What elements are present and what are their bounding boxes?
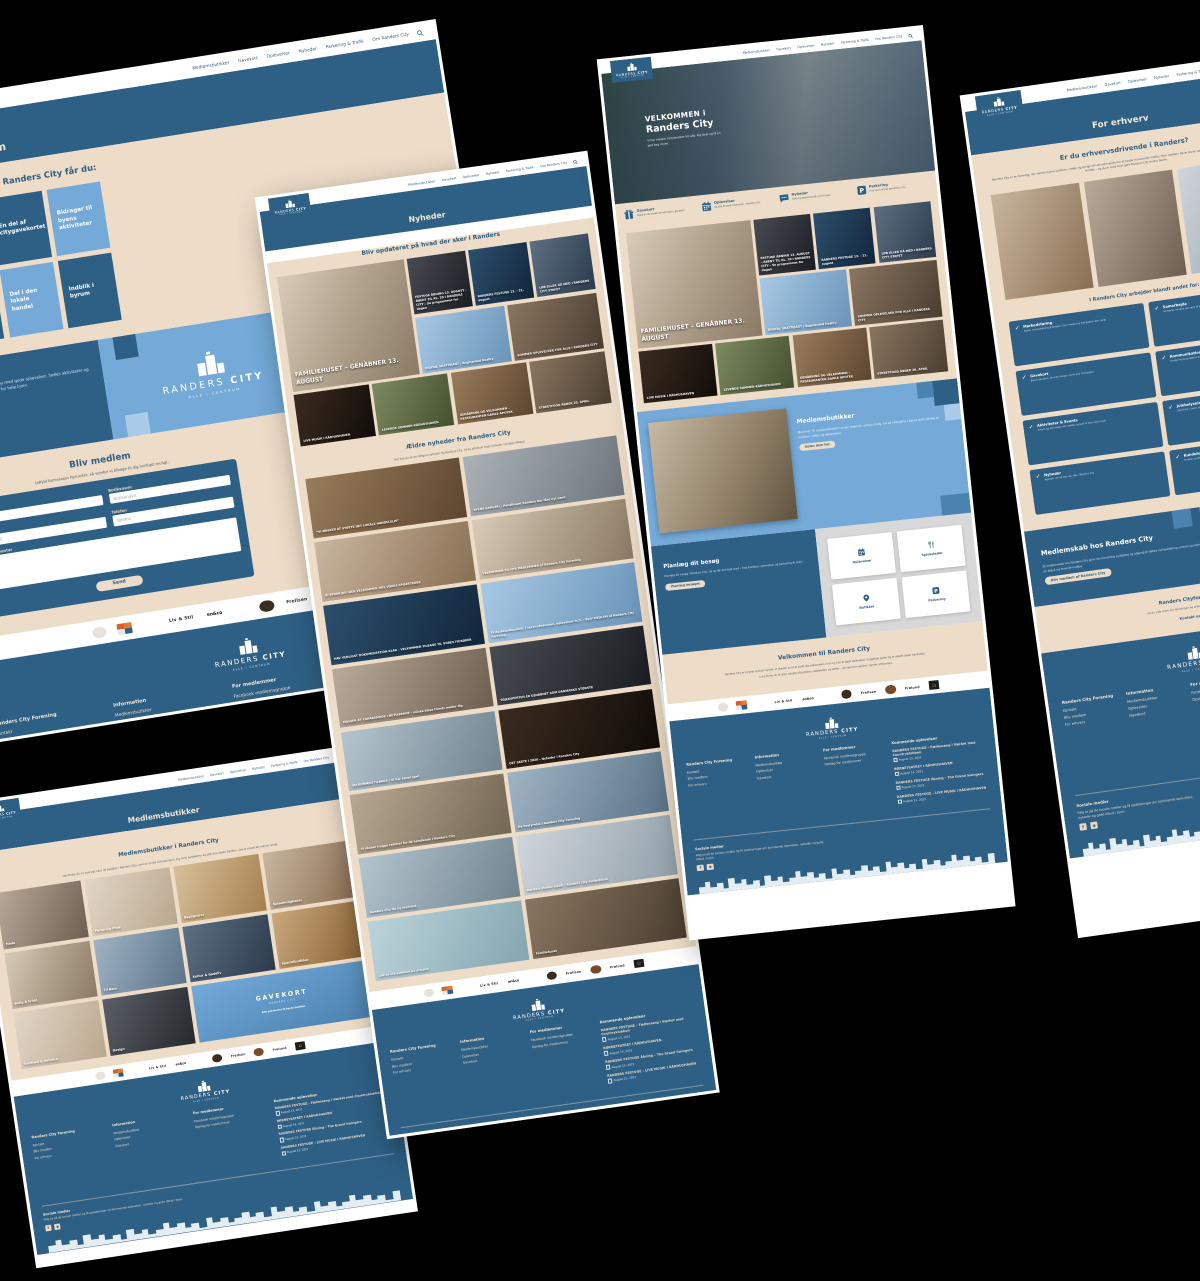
news-tile[interactable]: FESTUGE ÅBNING 13. AUGUST – ÅBENT TIL KL… xyxy=(753,213,816,275)
check-icon: ✓ xyxy=(1022,375,1032,410)
nav-item[interactable]: Nyheder xyxy=(252,765,265,771)
check-icon: ✓ xyxy=(1161,355,1171,390)
partner-logo: Liv & Stil xyxy=(167,612,196,628)
mosaic-square xyxy=(125,412,151,438)
news-grid: FAMILIEHUSET – GENÅBNER 13. AUGUST FESTU… xyxy=(618,200,956,404)
footer-column-medlemmer: For medlemmer Facebook medlemsgruppeOpsl… xyxy=(530,1022,593,1051)
category-tile[interactable]: Sundhed & Velvære xyxy=(13,1000,107,1069)
nav-item[interactable]: Nyheder xyxy=(486,170,500,176)
nav-item[interactable]: Om Randers City xyxy=(540,161,567,169)
partner-logo xyxy=(885,685,896,695)
nav-item[interactable]: Gavekort xyxy=(210,771,224,777)
pin-icon xyxy=(862,594,870,602)
news-tile[interactable]: LØB ELLER GÅ MED I RANDERS CITY STAFET xyxy=(873,201,936,263)
nav-item[interactable]: Oplevelser xyxy=(266,51,290,60)
front-news-section: FAMILIEHUSET – GENÅBNER 13. AUGUST FESTU… xyxy=(617,194,957,412)
buildings-logo-icon xyxy=(822,716,842,729)
footer-column-medlemmer: For medlemmer Facebook medlemsgruppeOpsl… xyxy=(1190,675,1200,705)
buildings-logo-icon xyxy=(991,96,1006,107)
nav-item[interactable]: Medlemsbutikker xyxy=(178,774,204,782)
category-tile[interactable]: Bolig & Fritid xyxy=(4,940,98,1009)
nav-item[interactable]: Nyheder xyxy=(1154,74,1170,80)
partner-logo xyxy=(528,973,540,983)
news-tile[interactable]: SOMMER OPLEVELSER FOR ALLE I RANDERS CIT… xyxy=(849,260,942,325)
calendar-icon xyxy=(279,1138,284,1143)
partner-logo: Frellsen xyxy=(564,967,583,978)
nav-item[interactable]: Gavekort xyxy=(776,46,791,51)
partner-logo xyxy=(234,603,250,617)
calendar-icon xyxy=(896,785,901,790)
category-tile[interactable]: Specialbutikker xyxy=(271,900,365,969)
nav-item[interactable]: Parkering & Trafik xyxy=(1176,69,1200,77)
nav-item[interactable]: Medlemsbutikker xyxy=(743,48,771,55)
plan-visit-button[interactable]: Planlæg besøget xyxy=(665,580,706,591)
nav-item[interactable]: Om Randers City xyxy=(303,755,329,763)
gift-icon xyxy=(624,209,635,220)
news-tile[interactable]: LEVENDE SOMMER-RÅDHUSHAVEN xyxy=(372,374,454,436)
category-tile[interactable]: Til Børn xyxy=(93,927,187,996)
footer-social: Sociale medier Følg os på de sociale med… xyxy=(402,1116,541,1136)
footer-column-medlemmer: For medlemmer Facebook medlemsgruppeOpsl… xyxy=(823,742,884,769)
footer-column-information: Information MedlemsbutikkerOplevelserGav… xyxy=(1126,684,1183,721)
partner-logo: Frølund xyxy=(903,682,921,692)
photo-cafe xyxy=(991,183,1094,300)
category-tile[interactable]: Spisemuligheder xyxy=(262,841,356,910)
see-shops-button[interactable]: Oplev dem her xyxy=(799,440,836,451)
mosaic-square xyxy=(113,334,139,360)
partner-logo xyxy=(546,971,558,981)
photo-clothing-store xyxy=(1084,169,1187,286)
check-icon: ✓ xyxy=(1175,455,1185,490)
category-tile[interactable]: Personlig Pleje xyxy=(84,867,178,936)
erhverv-section: Er du erhvervsdrivende i Randers? Rander… xyxy=(971,113,1200,532)
partner-logo xyxy=(254,1047,265,1056)
feature-gavekort[interactable]: Gavekort Glæd en du holder af med byens … xyxy=(624,203,697,220)
nav-item[interactable]: Medlemsbutikker xyxy=(1067,84,1098,92)
instagram-icon[interactable]: ◉ xyxy=(707,863,714,870)
partner-logo xyxy=(423,988,435,998)
calendar-icon xyxy=(602,1037,607,1042)
mosaic-square xyxy=(1172,508,1193,529)
buildings-logo-icon xyxy=(189,348,231,377)
banner-logo: RANDERS CITY ALLE I CENTRUM xyxy=(158,343,266,403)
search-icon[interactable] xyxy=(908,33,913,38)
nav-item[interactable]: Gavekort xyxy=(1104,81,1121,87)
footer-events: Kommende oplevelser RANDERS FESTUGE – Fæ… xyxy=(599,1008,701,1088)
nav-item[interactable]: Om Randers City xyxy=(875,34,902,41)
search-icon[interactable] xyxy=(416,29,424,37)
partner-logo xyxy=(442,986,454,996)
buildings-logo-icon xyxy=(283,199,296,209)
partner-logo: Frølund xyxy=(271,1044,288,1054)
nav-item[interactable]: Nyheder xyxy=(821,42,835,47)
news-tile[interactable]: RANDERS FESTUGE 13. - 21. august xyxy=(813,207,876,269)
nav-item[interactable]: Parkering & Trafik xyxy=(271,760,298,768)
calendar-icon xyxy=(608,1079,613,1084)
benefit-tile: Del i den lokale handel xyxy=(0,262,63,337)
check-icon: ✓ xyxy=(1154,306,1164,341)
news-tile[interactable]: LEVENDE SOMMER-RÅDHUSHAVEN xyxy=(715,336,794,395)
news-grid: FAMILIEHUSET – GENÅBNER 13. AUGUST FESTU… xyxy=(269,232,620,448)
calendar-icon xyxy=(604,1051,609,1056)
benefit-tile: Indblik i byrum xyxy=(58,253,122,328)
quick-links: Oplevelser Spisesteder Butikker Parkerin… xyxy=(815,513,982,637)
news-tile[interactable]: STREETFOOD ÅBNER 20. APRIL xyxy=(529,352,611,414)
facebook-icon[interactable]: f xyxy=(697,864,704,871)
nav-item[interactable]: Om Randers City xyxy=(372,32,409,43)
footer-column-forening: Randers City Forening KontaktBliv medlem… xyxy=(31,1125,107,1163)
nav-item[interactable]: Parkering & Trafik xyxy=(841,38,869,45)
partner-logo: en&co xyxy=(801,693,815,703)
nav-item[interactable]: Medlemsbutikker xyxy=(192,61,230,72)
quick-card-oplevelser[interactable]: Oplevelser xyxy=(827,532,896,580)
footer-column-information: Information MedlemsbutikkerOplevelserGav… xyxy=(113,686,224,739)
parking-icon xyxy=(856,185,867,196)
partner-logo xyxy=(590,965,602,975)
partner-logo: Liv & Stil xyxy=(773,696,794,707)
partner-logo xyxy=(194,1056,205,1065)
partner-logo xyxy=(717,703,728,713)
partner-logo: 12 xyxy=(928,680,939,690)
calendar-icon xyxy=(277,1124,282,1129)
partner-logo: en&co xyxy=(506,976,520,986)
benefit-tile: En del af citygavekortet xyxy=(0,190,52,265)
news-tile[interactable]: LIVE MUSIK I RÅDHUSHAVEN xyxy=(294,385,376,447)
news-tile[interactable]: GENÅBNING OG VELKOMMEN – RESTAURANTEN GA… xyxy=(451,363,533,425)
partner-logo xyxy=(142,618,158,632)
parking-icon xyxy=(932,587,940,595)
partner-logo: Frellsen xyxy=(859,687,877,697)
footer-column-information: Information MedlemsbutikkerOplevelserGav… xyxy=(754,749,816,783)
check-icon: ✓ xyxy=(1015,325,1025,360)
search-icon[interactable] xyxy=(572,159,578,165)
partner-logo xyxy=(736,701,747,711)
partner-logo: en&co xyxy=(205,607,225,621)
partner-logo xyxy=(113,1068,124,1077)
news-tile[interactable]: LIVE MUSIK I RÅDHUSHAVEN xyxy=(639,344,718,403)
nav-item[interactable]: Parkering & Trafik xyxy=(506,165,534,173)
footer-column-medlemmer: For medlemmer Facebook medlemsgruppeOpsl… xyxy=(193,1101,268,1132)
nav-item[interactable]: Medlemsbutikker xyxy=(408,179,436,187)
footer-column-forening: Randers City Forening KontaktBliv medlem… xyxy=(390,1042,454,1078)
buildings-logo-icon xyxy=(1184,645,1200,661)
partner-logo xyxy=(755,699,766,709)
category-tile[interactable]: Mode xyxy=(0,881,89,950)
quick-card-parkering[interactable]: Parkering xyxy=(902,571,971,619)
instagram-icon[interactable]: ◉ xyxy=(54,1223,61,1230)
plan-visit-card: Planlæg dit besøg Planlæg dit besøg i Ra… xyxy=(651,529,827,654)
partner-logo: 12 xyxy=(633,959,645,969)
site-logo[interactable]: RANDERS CITY ALLE I CENTRUM xyxy=(610,57,653,83)
footer-column-forening: Randers City Forening KontaktBliv medlem… xyxy=(1062,693,1119,730)
quick-card-butikker[interactable]: Butikker xyxy=(832,578,901,626)
page-title: Bliv medlem xyxy=(0,139,7,163)
calendar-icon xyxy=(701,201,712,212)
feature-oplevelser[interactable]: Oplevelser Se alle de gode oplevelser i … xyxy=(701,195,774,212)
footer-column-forening: Randers City Forening KontaktBliv medlem… xyxy=(686,757,748,791)
partner-logo: Liv & Stil xyxy=(148,1062,168,1073)
calendar-icon xyxy=(606,1065,611,1070)
news-tile[interactable]: FESTUGE ÅBNING 13. AUGUST – ÅBENT TIL KL… xyxy=(406,251,472,315)
nav-item[interactable]: Oplevelser xyxy=(797,44,814,50)
nav-item[interactable]: Gavekort xyxy=(442,176,457,182)
facebook-icon[interactable]: f xyxy=(1079,823,1087,831)
news-tile[interactable]: DIGITAL SKATTEJAGT | Augmented Reality xyxy=(415,305,512,374)
nav-item[interactable]: Nyheder xyxy=(298,47,317,55)
site-footer: RANDERS CITY ALLE I CENTRUM Randers City… xyxy=(669,688,1008,896)
buildings-logo-icon xyxy=(625,62,638,71)
news-tile[interactable]: DIGITAL SKATTEJAGT | Augmented Reality xyxy=(759,270,852,335)
facebook-icon[interactable]: f xyxy=(45,1224,52,1231)
calendar-icon xyxy=(281,1151,286,1156)
contact-button[interactable]: Kontakt os xyxy=(1173,611,1200,623)
news-tile[interactable]: SOMMER OPLEVELSER FOR ALLE I RANDERS CIT… xyxy=(507,293,604,362)
news-tile[interactable]: RANDERS FESTUGE 13. - 21. august xyxy=(468,242,534,306)
footer-link[interactable]: Gavekort xyxy=(117,714,223,736)
calendar-icon xyxy=(857,548,865,556)
partner-logo xyxy=(117,622,133,636)
nav-item[interactable]: Oplevelser xyxy=(1128,77,1148,84)
nav-item[interactable]: Gavekort xyxy=(238,56,258,64)
partner-logo xyxy=(841,690,852,700)
calendar-icon xyxy=(275,1111,280,1116)
category-tile[interactable]: Dagligvarer xyxy=(173,854,267,923)
submit-button[interactable]: Send xyxy=(95,574,144,592)
page-title: Nyheder xyxy=(408,210,446,224)
partner-logo: en&co xyxy=(174,1059,188,1069)
feature-parkering[interactable]: Parkering Find nemt vej og parkering i c… xyxy=(856,178,929,195)
news-tile[interactable]: STREETFOOD ÅBNER 20. APRIL xyxy=(869,320,948,379)
partner-logo: Frellsen xyxy=(229,1050,247,1060)
instagram-icon[interactable]: ◉ xyxy=(1090,821,1098,829)
news-tile[interactable]: LØB ELLER GÅ MED I RANDERS CITY STAFET xyxy=(529,233,595,297)
page-title: For erhverv xyxy=(1091,113,1149,131)
partner-logo: Liv & Stil xyxy=(479,979,500,990)
check-icon: ✓ xyxy=(1168,405,1178,440)
partner-logo xyxy=(212,1053,223,1062)
quick-card-spisesteder[interactable]: Spisesteder xyxy=(897,525,966,573)
footer-events: Kommende oplevelser RANDERS FESTUGE – Fæ… xyxy=(273,1083,393,1160)
partner-logo xyxy=(95,1071,106,1080)
nav-item[interactable]: Oplevelser xyxy=(462,173,479,179)
news-tile-featured[interactable]: FAMILIEHUSET – GENÅBNER 13. AUGUST xyxy=(626,220,762,349)
partner-logo xyxy=(91,626,107,640)
category-tile[interactable]: Kultur & Gadeliv xyxy=(182,914,276,983)
footer-column-information: Information MedlemsbutikkerOplevelserGav… xyxy=(112,1113,188,1151)
benefit-tile: Bidrager til byens aktiviteter xyxy=(47,181,111,256)
footer-column-forening: Randers City Forening KontaktBliv medlem… xyxy=(0,705,105,742)
check-icon: ✓ xyxy=(1035,474,1045,509)
partner-logo: Frellsen xyxy=(284,594,310,609)
feature-nyheder[interactable]: Nyheder Hold dig opdateret på nyt fra by… xyxy=(779,187,852,204)
partner-logo: Frølund xyxy=(608,961,626,972)
cutlery-icon xyxy=(927,541,935,549)
news-tile[interactable]: GENÅBNING OG VELKOMMEN – RESTAURANTEN GA… xyxy=(792,328,871,387)
partner-logo xyxy=(460,983,472,993)
nav-item[interactable]: Oplevelser xyxy=(230,768,247,774)
news-tile-featured[interactable]: FAMILIEHUSET – GENÅBNER 13. AUGUST xyxy=(277,259,419,392)
category-tile[interactable]: Design xyxy=(102,987,196,1056)
shop-photo xyxy=(648,409,797,534)
buildings-logo-icon xyxy=(235,636,262,655)
calendar-icon xyxy=(893,758,898,763)
chat-icon xyxy=(779,193,790,204)
partner-logo xyxy=(130,1066,141,1075)
city-skyline-graphic xyxy=(406,1123,711,1136)
partner-logo: 12 xyxy=(295,1041,306,1050)
footer-column-information: Information MedlemsbutikkerOplevelserGav… xyxy=(460,1032,524,1068)
calendar-icon xyxy=(894,771,899,776)
partner-logo xyxy=(822,692,833,702)
calendar-icon xyxy=(897,799,902,804)
check-icon: ✓ xyxy=(1029,425,1039,460)
footer-events: Kommende oplevelser RANDERS FESTUGE – Fæ… xyxy=(891,732,989,809)
nav-item[interactable]: Parkering & Trafik xyxy=(325,39,364,50)
partner-logo xyxy=(259,599,275,613)
